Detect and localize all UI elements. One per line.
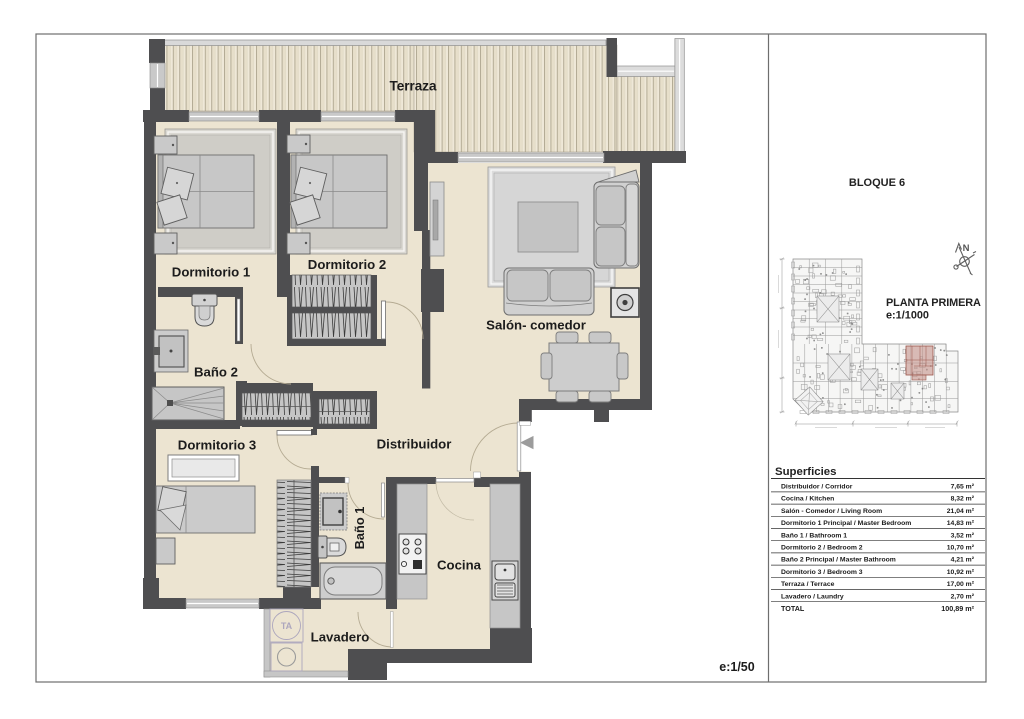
svg-text:8,32 m²: 8,32 m² bbox=[951, 496, 975, 503]
svg-text:2,70 m²: 2,70 m² bbox=[951, 593, 975, 600]
svg-text:PLANTA PRIMERA: PLANTA PRIMERA bbox=[886, 297, 981, 309]
svg-text:Dormitorio 2: Dormitorio 2 bbox=[308, 257, 386, 272]
svg-text:21,04 m²: 21,04 m² bbox=[947, 508, 975, 515]
svg-text:Lavadero / Laundry: Lavadero / Laundry bbox=[781, 593, 844, 600]
svg-text:Salón - Comedor / Living Room: Salón - Comedor / Living Room bbox=[781, 508, 882, 515]
svg-text:e:1/1000: e:1/1000 bbox=[886, 310, 929, 322]
svg-text:Distribuidor: Distribuidor bbox=[377, 437, 452, 452]
svg-text:14,83 m²: 14,83 m² bbox=[947, 520, 975, 527]
svg-text:Terraza: Terraza bbox=[389, 79, 437, 94]
svg-text:Terraza / Terrace: Terraza / Terrace bbox=[781, 581, 835, 588]
svg-text:4,21 m²: 4,21 m² bbox=[951, 557, 975, 564]
svg-text:Dormitorio 2 / Bedroom 2: Dormitorio 2 / Bedroom 2 bbox=[781, 545, 863, 552]
svg-text:3,52 m²: 3,52 m² bbox=[951, 532, 975, 539]
svg-text:Cocina: Cocina bbox=[437, 558, 482, 573]
svg-text:Distribuidor / Corridor: Distribuidor / Corridor bbox=[781, 484, 853, 491]
svg-text:Cocina / Kitchen: Cocina / Kitchen bbox=[781, 496, 834, 503]
svg-text:TA: TA bbox=[281, 621, 293, 631]
svg-text:Dormitorio 1 Principal / Maste: Dormitorio 1 Principal / Master Bedroom bbox=[781, 520, 911, 527]
svg-text:e:1/50: e:1/50 bbox=[719, 660, 754, 674]
svg-text:Baño 2 Principal / Master Bath: Baño 2 Principal / Master Bathroom bbox=[781, 557, 896, 564]
svg-text:Baño 1: Baño 1 bbox=[352, 507, 367, 550]
svg-text:BLOQUE 6: BLOQUE 6 bbox=[849, 177, 905, 189]
svg-text:Dormitorio 1: Dormitorio 1 bbox=[172, 265, 250, 280]
svg-text:Baño 2: Baño 2 bbox=[194, 365, 238, 380]
svg-text:TOTAL: TOTAL bbox=[781, 604, 805, 613]
svg-text:100,89 m²: 100,89 m² bbox=[941, 604, 974, 613]
svg-text:Lavadero: Lavadero bbox=[311, 630, 370, 645]
svg-text:10,92 m²: 10,92 m² bbox=[947, 569, 975, 576]
svg-text:7,65 m²: 7,65 m² bbox=[951, 484, 975, 491]
svg-text:17,00 m²: 17,00 m² bbox=[947, 581, 975, 588]
svg-text:Salón- comedor: Salón- comedor bbox=[486, 318, 586, 333]
svg-text:Dormitorio 3: Dormitorio 3 bbox=[178, 438, 256, 453]
svg-text:Dormitorio 3 / Bedroom 3: Dormitorio 3 / Bedroom 3 bbox=[781, 569, 863, 576]
svg-text:Superficies: Superficies bbox=[775, 466, 836, 478]
svg-text:N: N bbox=[963, 243, 970, 254]
svg-text:Baño 1 / Bathroom 1: Baño 1 / Bathroom 1 bbox=[781, 532, 847, 539]
svg-text:10,70 m²: 10,70 m² bbox=[947, 545, 975, 552]
